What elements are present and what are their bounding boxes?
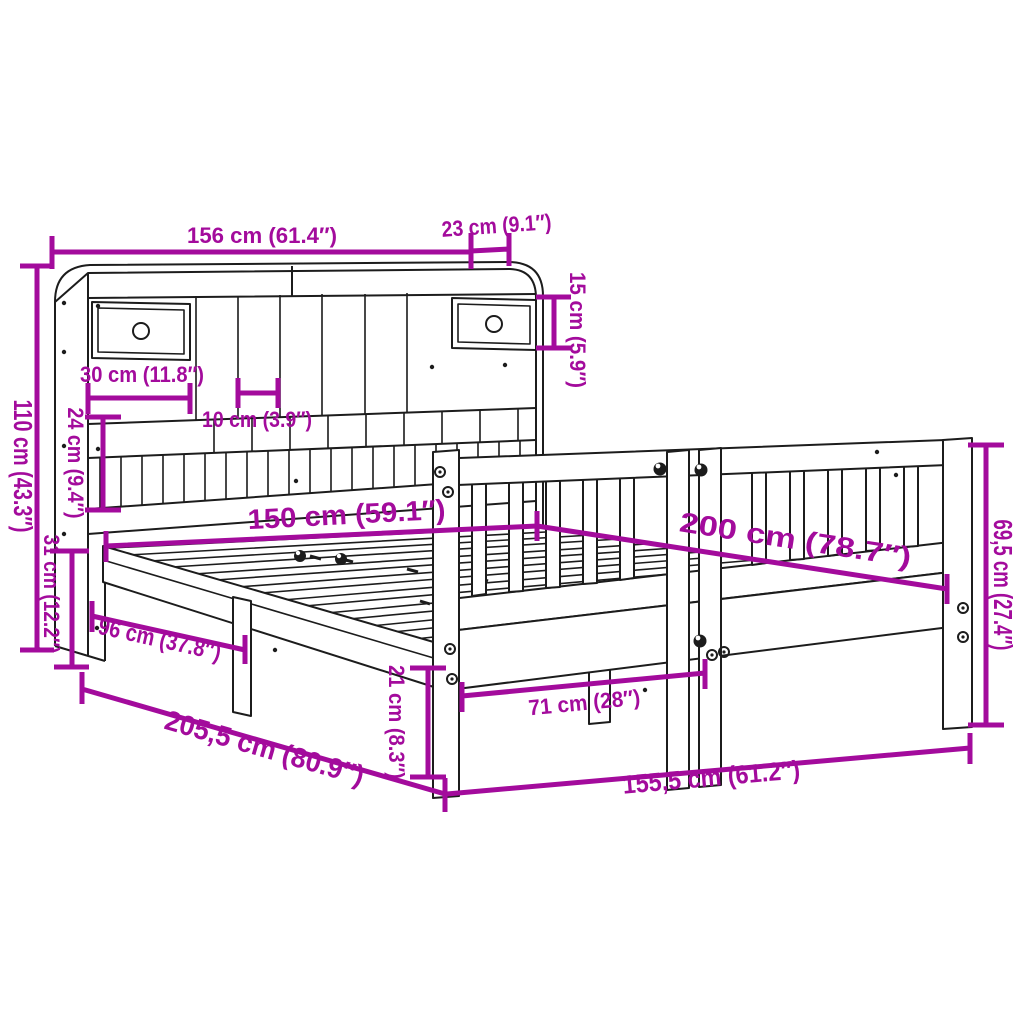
dim-label-mattress-width: 150 cm (59.1″) [247,494,446,535]
dim-label-base-height: 31 cm (12.2″) [39,535,64,654]
dim-label-headboard-width: 156 cm (61.4″) [187,223,337,248]
dim-label-frame-width: 155,5 cm (61.2″) [621,754,801,799]
dim-cubby-width: 10 cm (3.9″) [202,378,312,432]
bed-dimension-diagram: 156 cm (61.4″) 23 cm (9.1″) 15 cm (5.9″)… [0,0,1024,1024]
headboard-lower-shelf [88,440,536,458]
dim-label-total-length: 205,5 cm (80.9″) [161,704,368,791]
headboard-cubby-dividers [196,293,407,420]
dim-label-shelf-opening-height: 24 cm (9.4″) [63,408,88,519]
dim-top-shelf-height: 15 cm (5.9″) [536,272,590,388]
front-left-leg [233,597,251,716]
dim-drawer-width: 30 cm (11.8″) [80,362,204,414]
diagram-canvas: 156 cm (61.4″) 23 cm (9.1″) 15 cm (5.9″)… [0,0,1024,1024]
dim-label-cubby-width: 10 cm (3.9″) [202,407,312,432]
dim-label-side-rail-length: 96 cm (37.8″) [96,613,224,666]
headboard-mid-shelf [88,408,536,424]
dim-label-leg-height: 21 cm (8.3″) [384,665,409,779]
left-drawer [92,302,190,360]
dim-label-headboard-height: 110 cm (43.3″) [8,400,38,533]
dim-label-headboard-depth: 23 cm (9.1″) [441,209,552,242]
footboard-mid-post-a [667,450,689,790]
dim-label-top-shelf-height: 15 cm (5.9″) [565,272,590,388]
dim-base-height: 31 cm (12.2″) [39,535,89,668]
footboard-mid-post-b [699,448,721,787]
dim-headboard-depth: 23 cm (9.1″) [441,209,552,266]
dim-footboard-height: 69,5 cm (27.4″) [968,445,1018,725]
dim-label-footboard-height: 69,5 cm (27.4″) [988,520,1018,651]
dim-label-drawer-width: 30 cm (11.8″) [80,362,204,387]
